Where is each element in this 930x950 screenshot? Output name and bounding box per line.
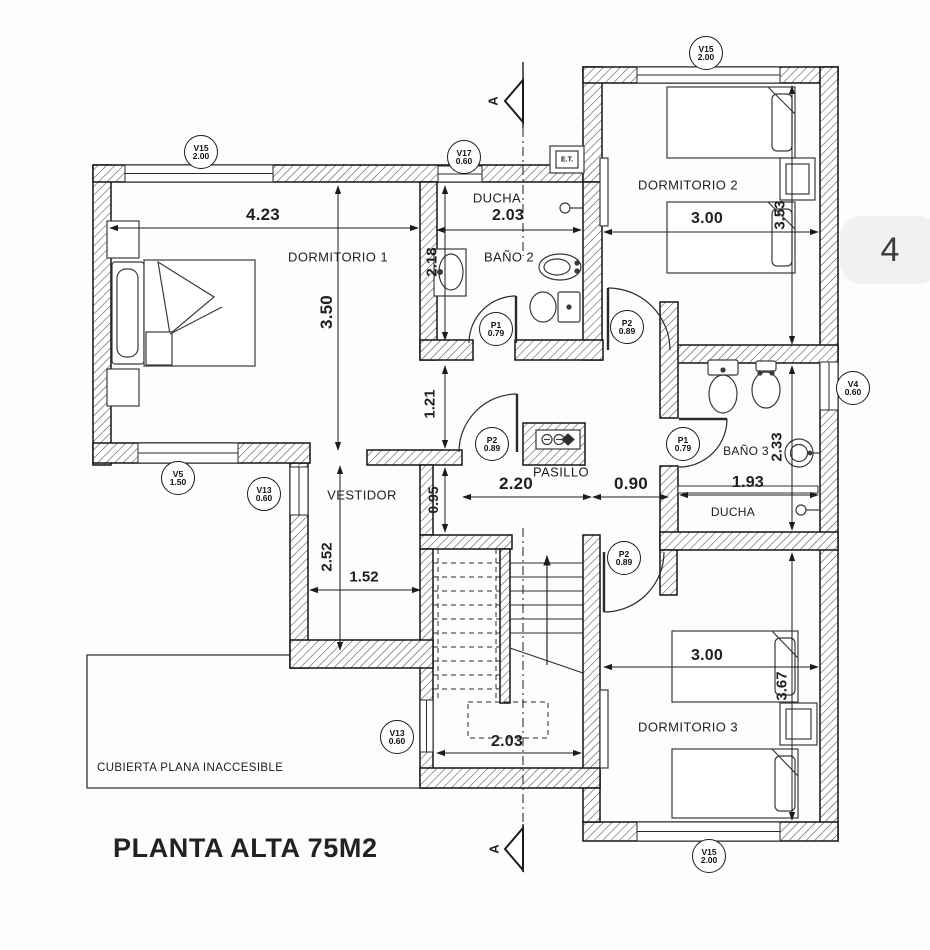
- window-tag-v15-dorm3: V152.00: [692, 839, 726, 873]
- window-tag-v13-stairs: V130.60: [380, 720, 414, 754]
- bidet-bano2: [539, 254, 581, 280]
- room-label-dormitorio3: DORMITORIO 3: [638, 720, 738, 735]
- room-label-dormitorio1: DORMITORIO 1: [288, 250, 388, 265]
- section-label-bottom: A: [487, 844, 502, 853]
- dim-bano3-height: 2.33: [769, 432, 786, 461]
- roof-label: CUBIERTA PLANA INACCESIBLE: [97, 762, 283, 774]
- window-v13-vestidor: [290, 467, 308, 515]
- window-tag-v17-ducha: V170.60: [447, 140, 481, 174]
- dim-stairs-width: 2.03: [491, 733, 523, 751]
- dim-bano2-height: 2.18: [424, 247, 441, 276]
- window-v5-dorm1: [138, 443, 238, 463]
- toilet-bano3: [708, 360, 738, 413]
- nightstand-dorm2: [780, 158, 815, 200]
- window-v13-stairs: [420, 700, 433, 752]
- window-tag-v15-dorm2: V152.00: [689, 36, 723, 70]
- window-tag-v5-dorm1: V51.50: [161, 461, 195, 495]
- section-label-top: A: [486, 96, 501, 105]
- dim-nook-height: 1.21: [422, 389, 439, 418]
- floorplan-sheet: DORMITORIO 1 DUCHA BAÑO 2 DORMITORIO 2 B…: [0, 0, 930, 950]
- sheet-title: PLANTA ALTA 75M2: [113, 833, 378, 864]
- room-label-vestidor: VESTIDOR: [327, 488, 397, 503]
- bed1-dorm2: [667, 87, 795, 158]
- dim-dorm1-height: 3.50: [317, 295, 337, 329]
- room-label-dormitorio2: DORMITORIO 2: [638, 178, 738, 193]
- window-tag-v15-dorm1: V152.00: [184, 135, 218, 169]
- bed2-dorm3: [672, 749, 798, 818]
- door-tag-p2-dorm1: P20.89: [475, 427, 509, 461]
- section-arrow-top: [505, 80, 523, 122]
- dim-dorm3-height: 3.67: [774, 671, 791, 700]
- dim-vestidor-width: 1.52: [349, 569, 378, 586]
- dim-dorm1-width: 4.23: [246, 205, 280, 225]
- door-tag-p1-bano3: P10.79: [666, 427, 700, 461]
- shower-tap-ducha2: [560, 203, 583, 213]
- dim-ducha2-width: 2.03: [492, 207, 524, 225]
- et-box-label: E.T.: [561, 156, 573, 163]
- dim-pasillo-width1: 2.20: [499, 474, 533, 494]
- window-tag-v4-bano3: V40.60: [836, 371, 870, 405]
- room-label-bano3: BAÑO 3: [723, 444, 769, 458]
- dim-pasillo-height: 0.95: [425, 486, 441, 513]
- door-tag-p2-dorm2: P20.89: [610, 310, 644, 344]
- closet-dorm3: [600, 690, 608, 768]
- window-tag-v13-vestidor: V130.60: [247, 477, 281, 511]
- dim-pasillo-width2: 0.90: [614, 474, 648, 494]
- toilet-bano2: [530, 292, 580, 322]
- section-arrow-bottom: [505, 828, 523, 870]
- room-label-pasillo: PASILLO: [533, 465, 589, 480]
- room-label-ducha2: DUCHA: [473, 191, 521, 206]
- radiator-pasillo: [536, 430, 580, 449]
- sink-bano3: [785, 439, 820, 467]
- dim-dorm3-width: 3.00: [691, 647, 723, 665]
- bed-dorm1: [107, 221, 255, 406]
- bidet-bano3: [752, 361, 780, 408]
- nightstand-dorm3: [780, 703, 817, 745]
- dim-dorm2-height: 3.53: [772, 200, 789, 229]
- dim-vestidor-height: 2.52: [319, 542, 336, 571]
- room-label-bano2: BAÑO 2: [484, 250, 534, 265]
- closet-dorm2: [600, 158, 608, 226]
- door-tag-p1-bano2: P10.79: [479, 312, 513, 346]
- dim-dorm2-width: 3.00: [691, 210, 723, 228]
- room-label-ducha3: DUCHA: [711, 505, 755, 519]
- door-tag-p2-dorm3: P20.89: [607, 541, 641, 575]
- dim-bano3-width: 1.93: [732, 474, 764, 492]
- page-number: 4: [881, 231, 900, 270]
- page-number-pill: 4: [840, 216, 930, 284]
- shower-tap-ducha3: [796, 505, 820, 515]
